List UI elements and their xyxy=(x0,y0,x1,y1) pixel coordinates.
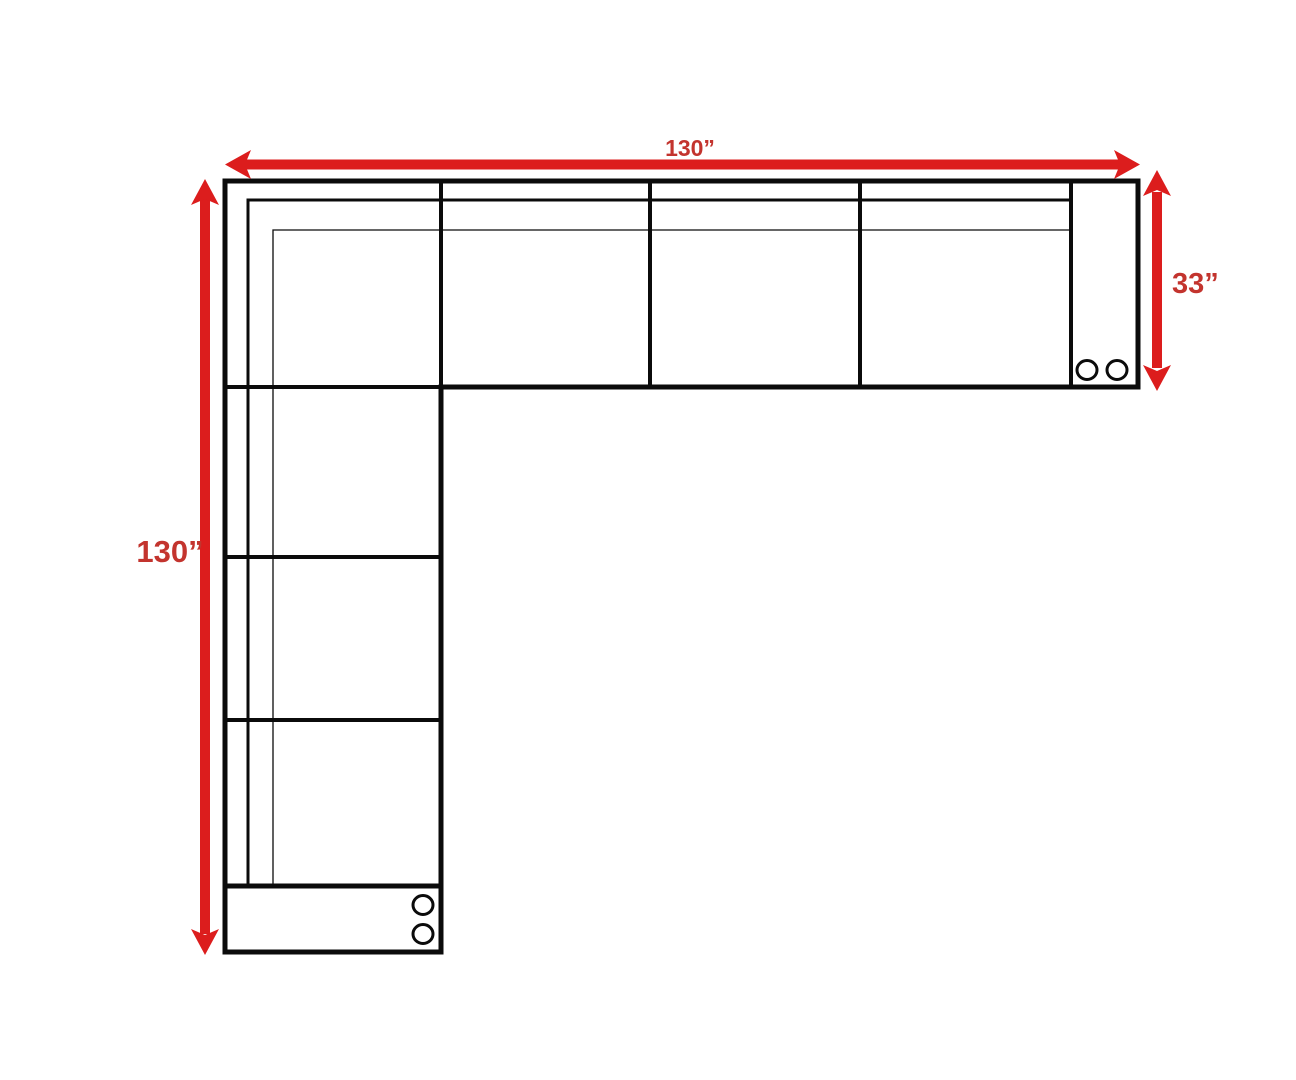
right-dimension-arrow: 33” xyxy=(1143,170,1219,391)
caster-icon xyxy=(1107,361,1127,380)
bottom-armrest-casters xyxy=(413,896,433,944)
right-arrow-bottom-head xyxy=(1143,365,1171,391)
right-armrest-casters xyxy=(1077,361,1127,380)
left-height-label: 130” xyxy=(136,534,203,569)
sofa-plan xyxy=(225,181,1138,952)
left-dimension-arrow: 130” xyxy=(136,179,219,955)
right-arrow-bar xyxy=(1152,192,1162,368)
diagram-canvas: 130” 130” 33” xyxy=(0,0,1296,1080)
caster-icon xyxy=(413,896,433,915)
right-depth-label: 33” xyxy=(1172,268,1219,300)
sectional-sofa-diagram: 130” 130” 33” xyxy=(0,0,1296,1080)
caster-icon xyxy=(1077,361,1097,380)
sofa-outer-boundary xyxy=(225,181,1138,952)
top-arrow-bar xyxy=(243,160,1122,170)
top-dimension-arrow: 130” xyxy=(225,135,1140,179)
caster-icon xyxy=(413,925,433,944)
backrest-inner-line xyxy=(248,200,1071,886)
top-width-label: 130” xyxy=(665,135,715,161)
